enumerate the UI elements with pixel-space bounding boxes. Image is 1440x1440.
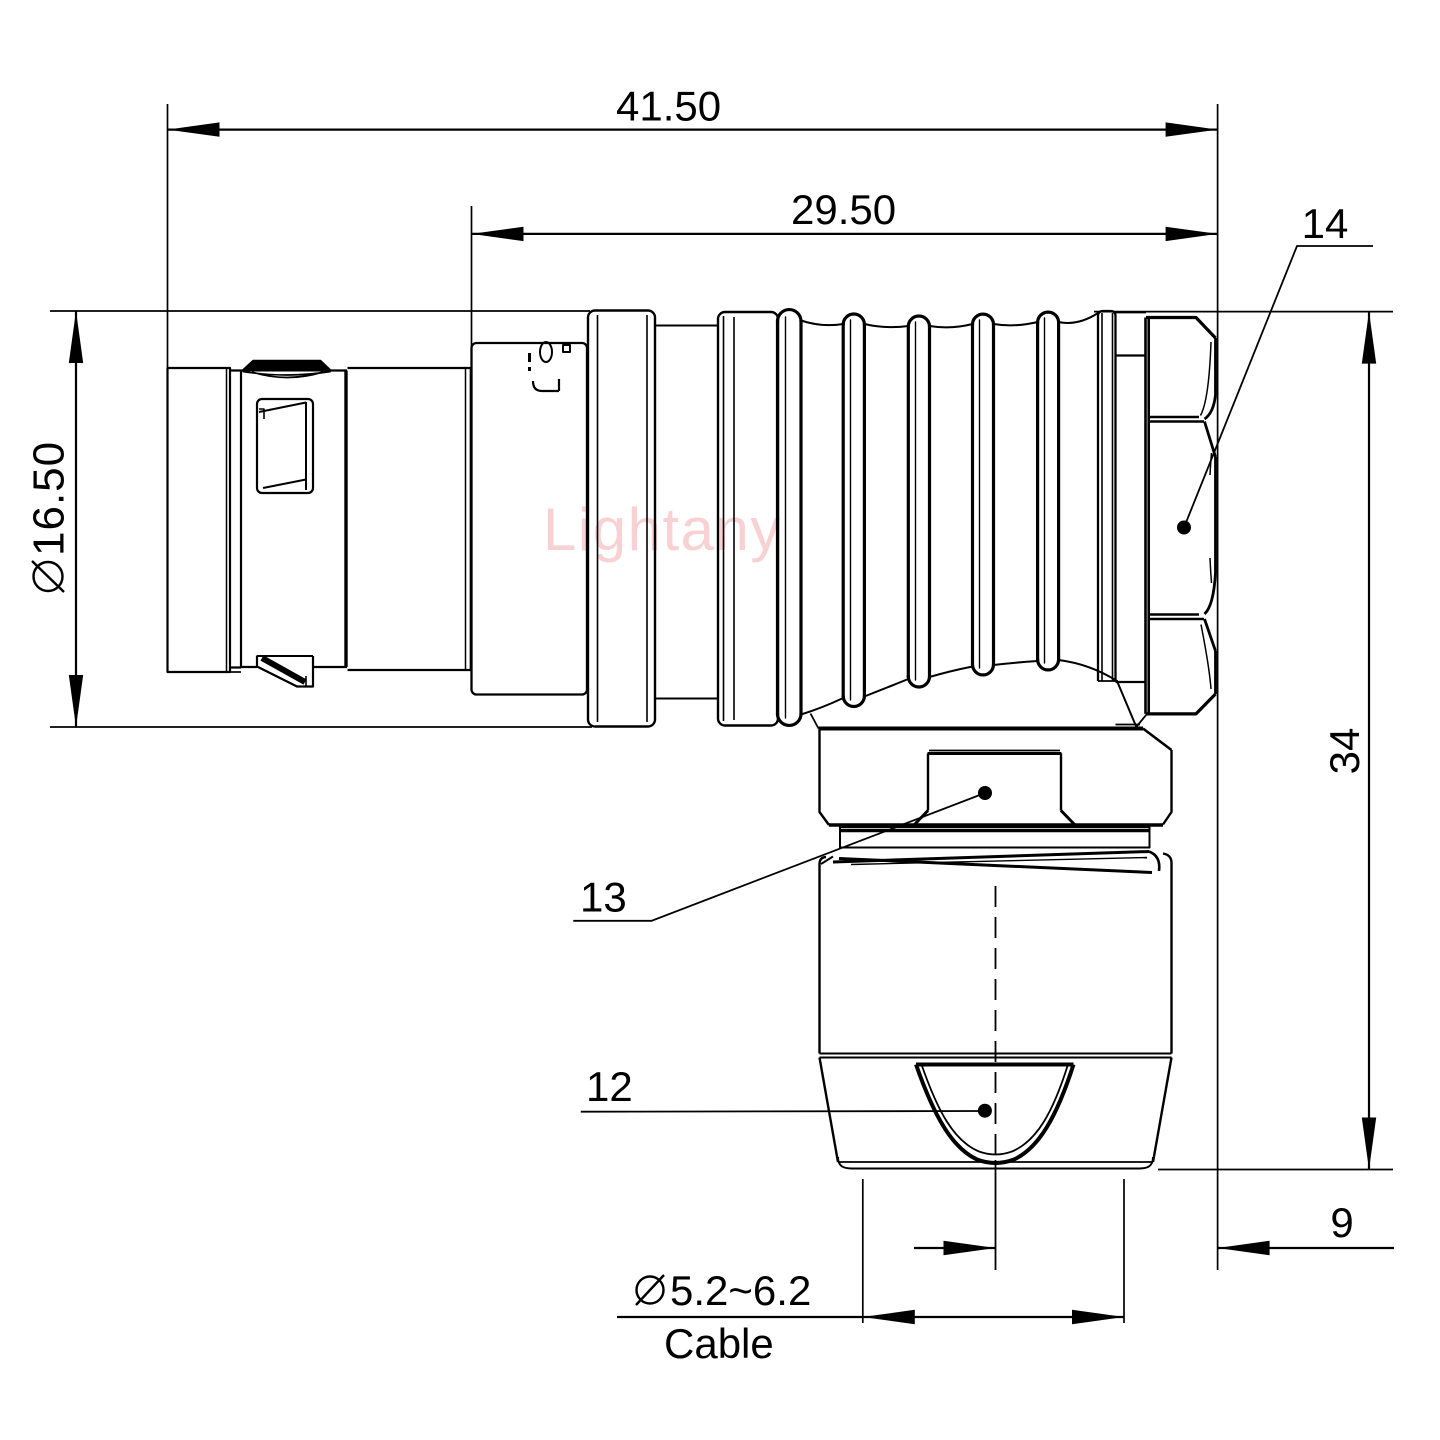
- svg-text:9: 9: [1330, 1199, 1353, 1246]
- svg-text:14: 14: [1302, 200, 1349, 247]
- svg-text:34: 34: [1321, 728, 1368, 775]
- svg-text:12: 12: [586, 1063, 633, 1110]
- svg-text:13: 13: [580, 874, 627, 921]
- svg-text:Lightany: Lightany: [543, 496, 782, 563]
- svg-text:16.50: 16.50: [25, 441, 74, 556]
- svg-text:5.2~6.2: 5.2~6.2: [670, 1267, 811, 1314]
- svg-text:Cable: Cable: [664, 1320, 774, 1367]
- svg-text:41.50: 41.50: [616, 83, 721, 130]
- svg-text:29.50: 29.50: [791, 186, 896, 233]
